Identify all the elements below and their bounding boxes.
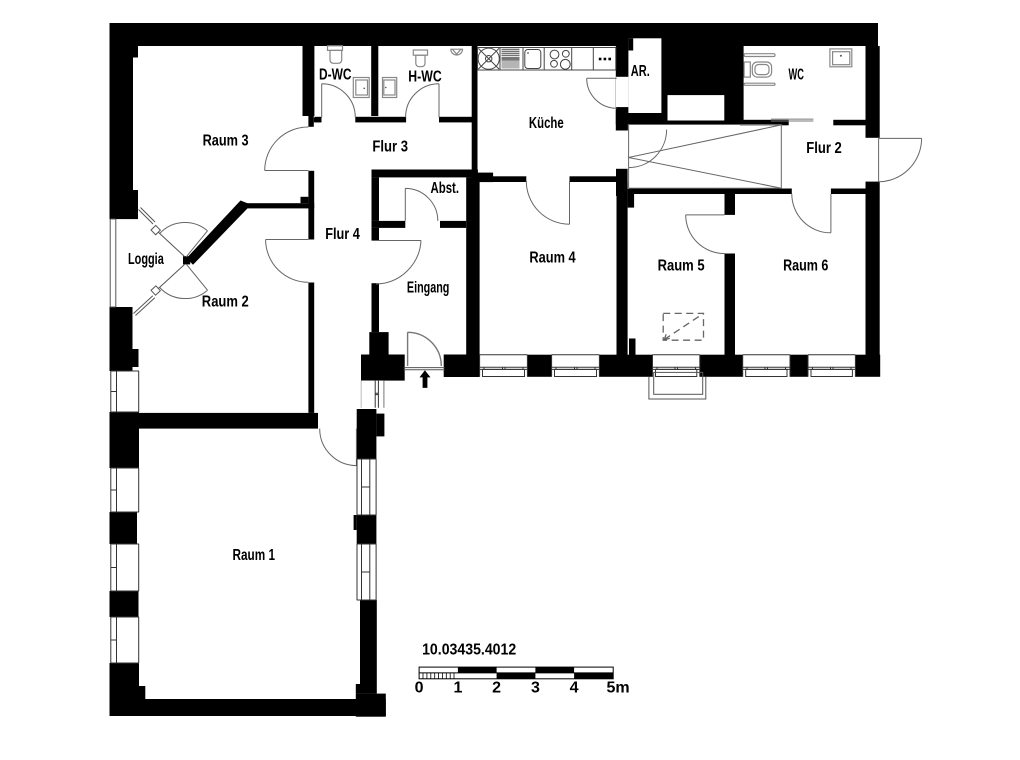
svg-text:Abst.: Abst. [431,180,460,197]
svg-text:Raum 5: Raum 5 [658,258,705,275]
svg-text:10.03435.4012: 10.03435.4012 [422,642,516,659]
svg-text:2: 2 [492,680,501,697]
svg-text:Raum 4: Raum 4 [529,250,576,267]
svg-text:Raum 3: Raum 3 [203,133,249,150]
svg-text:AR.: AR. [631,63,650,80]
svg-text:5m: 5m [606,680,629,697]
svg-text:Raum 1: Raum 1 [233,547,276,564]
svg-text:Eingang: Eingang [407,280,450,297]
svg-text:Loggia: Loggia [128,251,164,268]
svg-text:4: 4 [570,680,579,697]
svg-text:D-WC: D-WC [319,67,352,84]
svg-text:Flur 2: Flur 2 [806,140,842,157]
svg-text:1: 1 [453,680,462,697]
svg-text:3: 3 [531,680,540,697]
svg-text:H-WC: H-WC [408,69,441,86]
svg-text:Flur 4: Flur 4 [325,226,360,243]
svg-text:Küche: Küche [529,115,564,132]
svg-text:0: 0 [415,680,424,697]
svg-text:Raum 6: Raum 6 [783,258,829,275]
svg-text:WC: WC [789,67,804,84]
svg-text:Flur 3: Flur 3 [372,139,408,156]
svg-text:Raum 2: Raum 2 [202,293,249,310]
